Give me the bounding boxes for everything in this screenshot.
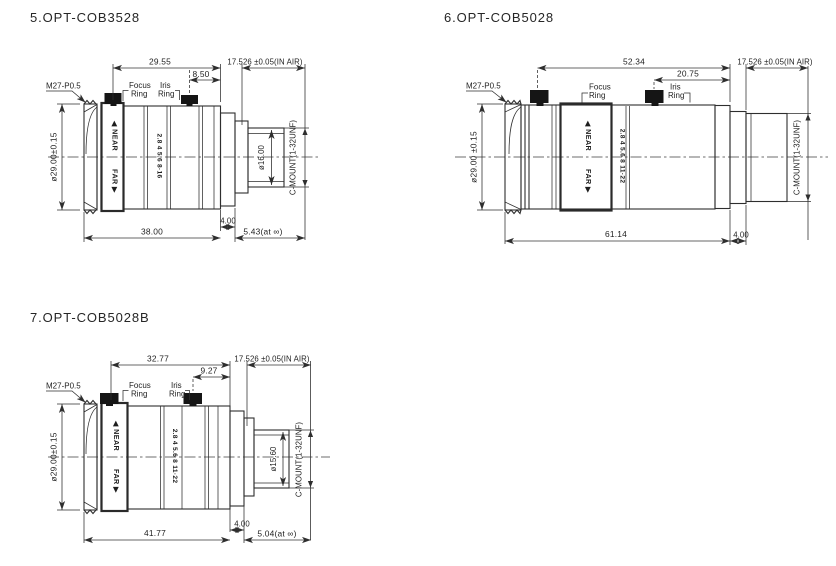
drawing-title: 6.OPT-COB5028 [444,10,554,25]
thread-leader [46,91,86,103]
iris-ring-leader [684,93,690,103]
mount-dim: C-MOUNT(1-32UNF) [793,120,802,196]
far-marking: FAR ▶ [111,169,120,193]
back-focus-dim: 5.43(at ∞) [243,227,282,237]
focus-lock-knob [100,393,119,404]
thread-label: M27-P0.5 [466,82,501,91]
iris-lock-knob [645,90,664,103]
dimensions: ø29.00±0.15 29.55 8.50 17.526 ±0.05(IN A… [49,57,310,243]
aperture-scale-marking: 2.8 4 5.6 8 11·22 [171,429,178,484]
thread-label: M27-P0.5 [46,382,81,391]
iris-ring-label-2: Ring [668,91,684,100]
main-barrel [124,106,221,209]
rear-step [730,112,746,204]
rear-flange-plate [230,411,244,506]
dimensions: ø29.00 ±0.15 52.34 20.75 17.526 ±0.05(IN… [469,57,813,246]
upper-length-dim: 32.77 [147,354,169,364]
outer-diameter-dim: ø29.00±0.15 [49,132,59,181]
focus-ring-leader [123,91,129,102]
front-element-arc [509,107,521,154]
rear-flange-dim: 4.00 [733,231,749,240]
lens-body: ◀ NEAR FAR ▶ 2.8 4 5.6 8 11·22 [505,90,787,214]
focus-ring-leader [582,93,588,103]
barrel-ring-lines [144,106,214,209]
lens-body: ◀ NEAR FAR ▶ 2.8 4 5.6 8·16 [84,93,284,214]
rear-flange-dim: 4.00 [234,520,250,529]
c-mount-barrel [746,114,787,202]
rear-flange-dim: 4.00 [220,217,236,226]
body-length-dim: 38.00 [141,227,163,237]
drawing-title: 5.OPT-COB3528 [30,10,140,25]
drawing-title: 7.OPT-COB5028B [30,310,150,325]
upper-length-dim: 52.34 [623,57,645,67]
iris-ring-label-2: Ring [169,390,185,399]
c-mount-barrel [248,128,284,187]
upper-length-dim: 29.55 [149,57,171,67]
focus-lock-knob [530,90,549,103]
front-element-arc [86,407,97,454]
near-marking: ◀ NEAR [584,120,593,152]
aperture-scale-marking: 2.8 4 5.6 8·16 [156,134,163,179]
focus-ring-label-2: Ring [589,91,605,100]
iris-ring-leader [175,91,180,101]
drawing-opt-cob5028b: 7.OPT-COB5028B ◀ NEAR FAR ▶ 2.8 4 5.6 8 … [30,310,330,543]
lens-drawings-svg: 5.OPT-COB3528 ◀ NEAR FAR ▶ 2.8 4 5.6 8·1… [0,0,836,566]
thread-leader [466,91,507,103]
iris-lock-knob [181,95,198,104]
near-marking: ◀ NEAR [112,420,121,452]
thread-label: M27-P0.5 [46,82,81,91]
iris-offset-dim: 20.75 [677,69,699,79]
body-length-dim: 41.77 [144,528,166,538]
thread-leader [46,391,86,403]
outer-diameter-dim: ø29.00±0.15 [49,432,59,481]
drawing-opt-cob3528: 5.OPT-COB3528 ◀ NEAR FAR ▶ 2.8 4 5.6 8·1… [30,10,318,242]
iris-lock-knob [184,393,203,404]
back-focus-dim: 5.04(at ∞) [257,529,296,539]
flange-focal-dim: 17.526 ±0.05(IN AIR) [737,58,812,67]
body-length-dim: 61.14 [605,229,627,239]
flange-focal-dim: 17.526 ±0.05(IN AIR) [227,58,302,67]
far-marking: FAR ▶ [584,169,593,193]
focus-ring-label-2: Ring [131,390,147,399]
iris-offset-dim: 9.27 [200,366,217,376]
lens-body: ◀ NEAR FAR ▶ 2.8 4 5.6 8 11·22 [84,393,289,514]
drawing-opt-cob5028: 6.OPT-COB5028 ◀ NEAR FAR ▶ 2.8 4 5.6 8 1… [444,10,828,245]
barrel-ring-lines [161,406,219,509]
flange-focal-dim: 17.526 ±0.05(IN AIR) [234,355,309,364]
mount-dim: C-MOUNT(1-32UNF) [295,422,304,498]
outer-diameter-dim: ø29.00 ±0.15 [469,131,479,183]
focus-ring-label-2: Ring [131,90,147,99]
front-element-arc [86,107,97,154]
far-marking: FAR ▶ [112,469,121,493]
iris-offset-dim: 8.50 [192,69,209,79]
rear-inner-diameter-dim: ø15.60 [269,446,278,471]
focus-ring-leader [123,391,129,402]
near-marking: ◀ NEAR [111,120,120,152]
rear-flange-plate [221,113,236,206]
barrel-ring-lines [626,106,630,209]
iris-ring-label-2: Ring [158,90,174,99]
mount-dim: C-MOUNT(1-32UNF) [289,120,298,196]
aperture-scale-marking: 2.8 4 5.6 8 11·22 [619,129,626,184]
drawing-sheet: 5.OPT-COB3528 ◀ NEAR FAR ▶ 2.8 4 5.6 8·1… [0,0,836,566]
rear-inner-diameter-dim: ø16.00 [257,144,266,169]
